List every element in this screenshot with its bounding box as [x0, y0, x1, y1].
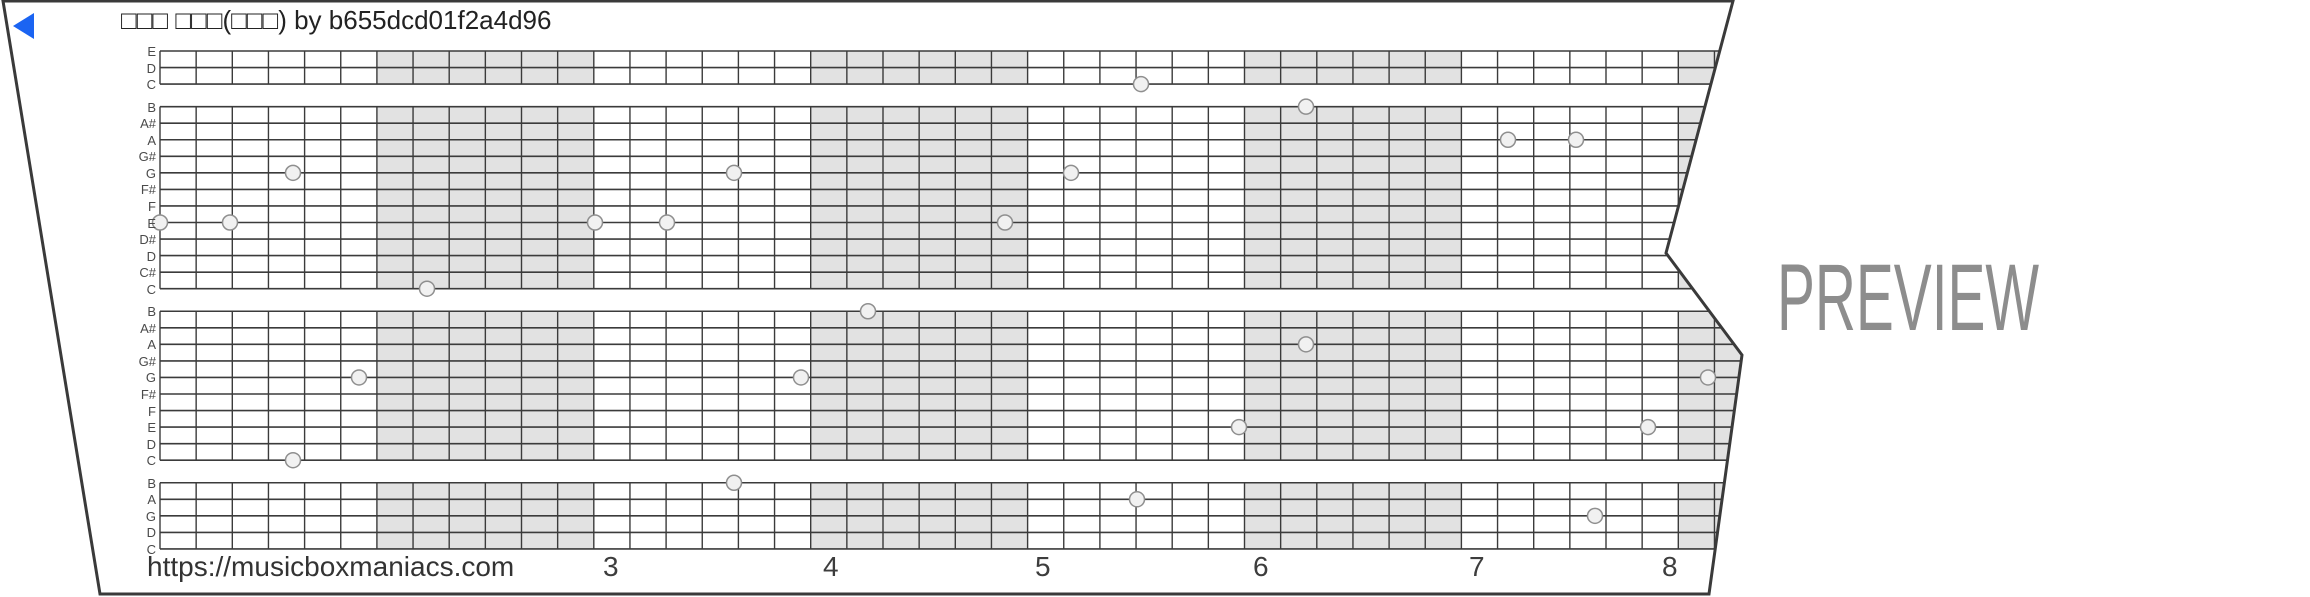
note-dot-g — [1588, 508, 1603, 523]
note-dot-c — [1134, 77, 1149, 92]
row-label-1: D — [0, 62, 156, 75]
row-label-29: C — [0, 543, 156, 556]
note-dot-b — [861, 304, 876, 319]
note-dot-e — [588, 215, 603, 230]
row-label-23: D — [0, 438, 156, 451]
row-label-24: C — [0, 454, 156, 467]
row-label-5: A — [0, 134, 156, 147]
note-dot-e — [660, 215, 675, 230]
preview-watermark: PREVIEW — [1777, 245, 2039, 351]
note-dot-e — [1641, 420, 1656, 435]
note-dot-g — [352, 370, 367, 385]
row-label-11: D# — [0, 233, 156, 246]
note-dot-g — [286, 165, 301, 180]
row-label-7: G — [0, 167, 156, 180]
row-label-19: G — [0, 371, 156, 384]
note-dot-c — [286, 453, 301, 468]
note-dot-a — [1130, 492, 1145, 507]
row-label-8: F# — [0, 183, 156, 196]
row-label-15: B — [0, 305, 156, 318]
row-label-9: F — [0, 200, 156, 213]
row-label-27: G — [0, 510, 156, 523]
row-label-28: D — [0, 526, 156, 539]
measure-number-3: 3 — [603, 551, 619, 583]
row-label-2: C — [0, 78, 156, 91]
note-dot-a — [1569, 132, 1584, 147]
note-dot-e — [998, 215, 1013, 230]
note-dot-c — [420, 281, 435, 296]
measure-number-8: 8 — [1662, 551, 1678, 583]
row-label-17: A — [0, 338, 156, 351]
strip-canvas: PREVIEW — [0, 0, 2310, 597]
play-icon[interactable] — [13, 13, 34, 39]
music-box-strip-preview: PREVIEW □□□ □□□(□□□) by b655dcd01f2a4d96… — [0, 0, 2310, 597]
note-dot-b — [1299, 99, 1314, 114]
row-label-6: G# — [0, 150, 156, 163]
row-label-14: C — [0, 283, 156, 296]
row-label-25: B — [0, 477, 156, 490]
row-label-16: A# — [0, 322, 156, 335]
site-url: https://musicboxmaniacs.com — [147, 551, 514, 583]
row-label-21: F — [0, 405, 156, 418]
row-label-12: D — [0, 250, 156, 263]
row-label-22: E — [0, 421, 156, 434]
note-dot-g — [727, 165, 742, 180]
note-dot-g — [1064, 165, 1079, 180]
melody-title: □□□ □□□(□□□) by b655dcd01f2a4d96 — [121, 5, 551, 36]
measure-number-4: 4 — [823, 551, 839, 583]
note-dot-e — [223, 215, 238, 230]
measure-number-6: 6 — [1253, 551, 1269, 583]
row-label-18: G# — [0, 355, 156, 368]
measure-number-7: 7 — [1469, 551, 1485, 583]
note-dot-g — [1701, 370, 1716, 385]
note-dot-a — [1299, 337, 1314, 352]
row-label-20: F# — [0, 388, 156, 401]
measure-number-5: 5 — [1035, 551, 1051, 583]
note-dot-b — [727, 475, 742, 490]
note-dot-g — [794, 370, 809, 385]
row-label-10: E — [0, 217, 156, 230]
row-label-4: A# — [0, 117, 156, 130]
row-label-13: C# — [0, 266, 156, 279]
row-label-26: A — [0, 493, 156, 506]
note-dot-e — [1232, 420, 1247, 435]
row-label-0: E — [0, 45, 156, 58]
note-dot-a — [1501, 132, 1516, 147]
row-label-3: B — [0, 101, 156, 114]
